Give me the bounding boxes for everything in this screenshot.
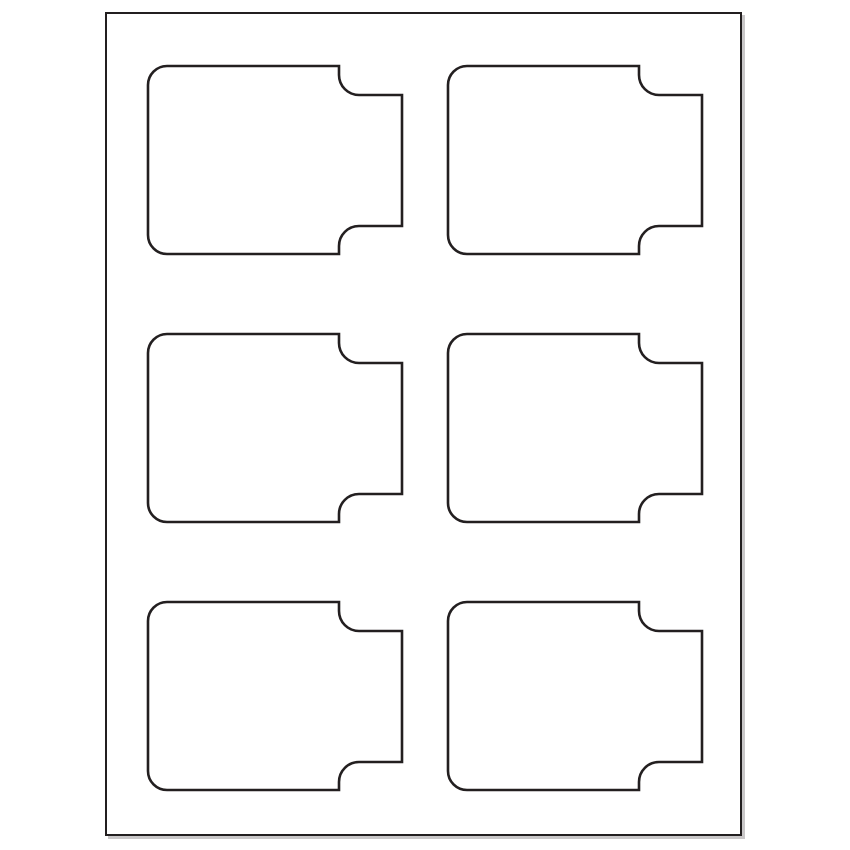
template-preview bbox=[0, 0, 850, 850]
label-sheet bbox=[105, 12, 742, 836]
